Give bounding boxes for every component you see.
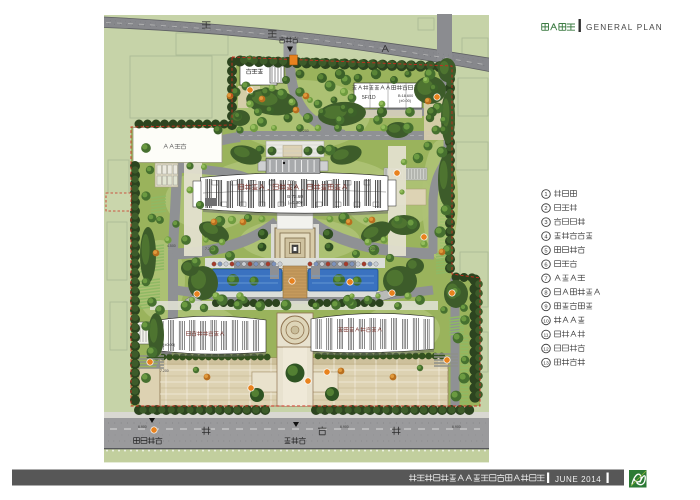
svg-text:1: 1 — [544, 192, 547, 198]
svg-text:7: 7 — [544, 276, 547, 282]
svg-text:7.200: 7.200 — [205, 247, 214, 251]
svg-text:6.900: 6.900 — [138, 425, 147, 429]
svg-text:B:18.600: B:18.600 — [398, 94, 413, 98]
svg-text:3: 3 — [544, 220, 547, 226]
svg-text:(±0.00): (±0.00) — [163, 343, 176, 347]
svg-text:5: 5 — [544, 248, 547, 254]
svg-text:GENERAL PLAN: GENERAL PLAN — [586, 23, 663, 32]
svg-text:7.200: 7.200 — [368, 247, 377, 251]
svg-text:13: 13 — [543, 361, 549, 367]
svg-text:6: 6 — [544, 262, 547, 268]
svg-text:2: 2 — [544, 206, 547, 212]
svg-text:6.900: 6.900 — [340, 425, 349, 429]
svg-text:9: 9 — [544, 305, 547, 311]
svg-text:7.200: 7.200 — [160, 369, 169, 373]
svg-text:6.900: 6.900 — [452, 425, 461, 429]
svg-text:B:73.60: B:73.60 — [287, 194, 303, 199]
svg-text:10: 10 — [543, 319, 549, 325]
svg-text:4.500: 4.500 — [167, 244, 176, 248]
svg-text:11: 11 — [543, 333, 548, 339]
svg-text:(±0.00): (±0.00) — [399, 99, 412, 103]
svg-text:5F/1D: 5F/1D — [362, 95, 376, 101]
svg-text:8: 8 — [544, 290, 547, 296]
svg-text:7.200: 7.200 — [300, 129, 309, 133]
svg-text:12: 12 — [543, 347, 549, 353]
svg-text:(±0.00): (±0.00) — [288, 200, 303, 205]
svg-text:JUNE 2014: JUNE 2014 — [555, 475, 601, 484]
